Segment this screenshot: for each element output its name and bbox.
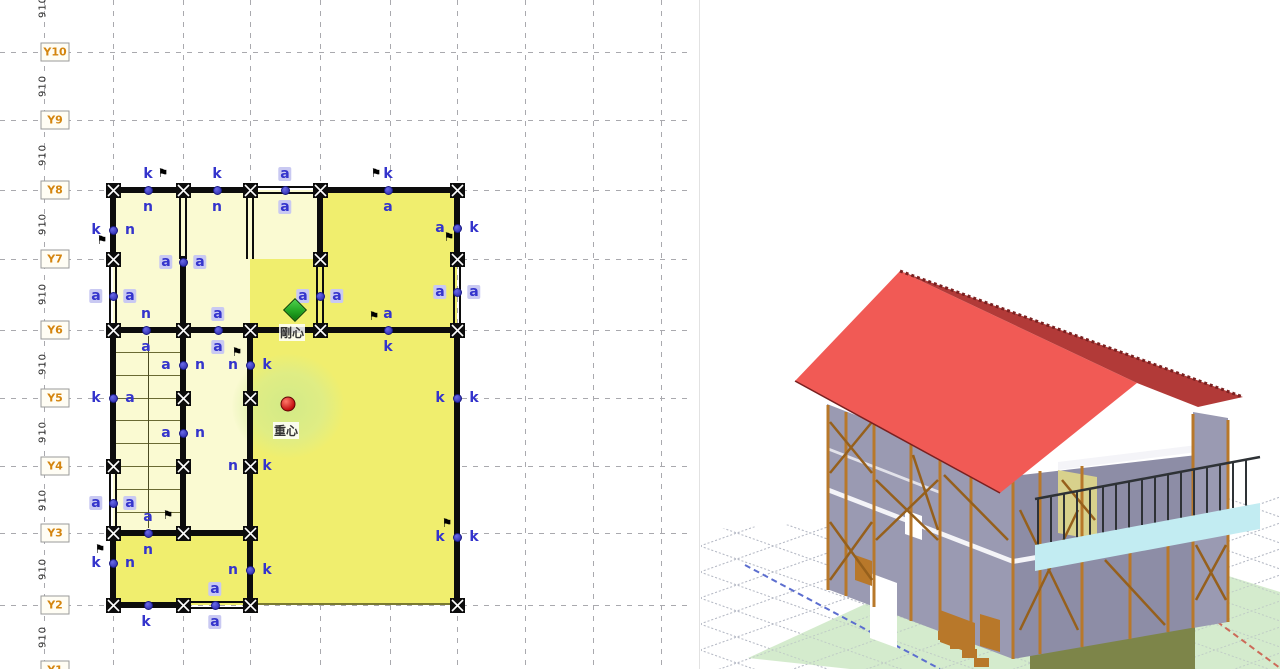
column-marker[interactable]	[243, 526, 258, 541]
brace-flag-icon: ⚑	[158, 167, 169, 179]
y-grid-label[interactable]: Y7	[41, 250, 70, 269]
stud-marker[interactable]	[179, 361, 188, 370]
center-of-gravity-label: 重心	[273, 422, 299, 439]
column-marker[interactable]	[106, 598, 121, 613]
brace-flag-icon: ⚑	[95, 543, 106, 555]
column-marker[interactable]	[106, 323, 121, 338]
stud-marker[interactable]	[453, 394, 462, 403]
wall-label[interactable]: a	[161, 426, 170, 440]
wall-label[interactable]: a	[89, 496, 102, 510]
column-marker[interactable]	[176, 526, 191, 541]
grid-line-horizontal	[0, 605, 692, 606]
y-grid-label[interactable]: Y3	[41, 524, 70, 543]
grid-iso-line	[700, 0, 1280, 182]
wall-label[interactable]: k	[383, 167, 392, 181]
brace-flag-icon: ⚑	[369, 310, 380, 322]
stud-marker[interactable]	[213, 186, 222, 195]
wall-label[interactable]: n	[228, 358, 238, 372]
grid-iso-line	[700, 0, 1280, 104]
wall-label[interactable]: a	[143, 510, 152, 524]
brace-flag-icon: ⚑	[371, 167, 382, 179]
y-grid-label[interactable]: Y5	[41, 389, 70, 408]
wall-label[interactable]: k	[435, 391, 444, 405]
stud-marker[interactable]	[246, 566, 255, 575]
wall-label[interactable]: a	[383, 200, 392, 214]
brace-flag-icon: ⚑	[163, 509, 174, 521]
stud-marker[interactable]	[281, 186, 290, 195]
column-marker[interactable]	[450, 598, 465, 613]
wall-label[interactable]: k	[435, 530, 444, 544]
stud-marker[interactable]	[453, 533, 462, 542]
wall-label[interactable]: a	[278, 167, 291, 181]
room-edge-line	[250, 603, 457, 605]
dimension-label: 910	[38, 558, 49, 580]
stud-marker[interactable]	[109, 292, 118, 301]
y-grid-label[interactable]: Y4	[41, 457, 70, 476]
grid-iso-line	[700, 104, 1280, 309]
grid-line-vertical	[525, 0, 526, 669]
column-marker[interactable]	[176, 323, 191, 338]
stud-marker[interactable]	[144, 601, 153, 610]
wall-label[interactable]: a	[467, 285, 480, 299]
wall-label[interactable]: a	[123, 289, 136, 303]
dimension-label: 910	[38, 353, 49, 375]
wall-label[interactable]: n	[195, 426, 205, 440]
stud-marker[interactable]	[214, 326, 223, 335]
room-area[interactable]	[250, 259, 320, 330]
wall-label[interactable]: a	[141, 340, 150, 354]
wall-label[interactable]: n	[212, 200, 222, 214]
wall-label[interactable]: a	[123, 496, 136, 510]
wall-solid[interactable]	[317, 187, 323, 262]
wall-label[interactable]: a	[330, 289, 343, 303]
wall-label[interactable]: a	[208, 582, 221, 596]
wall-label[interactable]: n	[143, 543, 153, 557]
column-marker[interactable]	[243, 183, 258, 198]
grid-iso-line	[700, 107, 1280, 312]
grid-iso-line	[700, 0, 1280, 130]
stud-marker[interactable]	[246, 361, 255, 370]
dimension-label: 910	[38, 489, 49, 511]
wall-label[interactable]: k	[143, 167, 152, 181]
grid-iso-line	[700, 3, 1280, 208]
wall-label[interactable]: n	[195, 358, 205, 372]
grid-iso-line	[700, 29, 1280, 234]
column-marker[interactable]	[106, 459, 121, 474]
grid-iso-line	[700, 107, 1280, 312]
wall-label[interactable]: a	[433, 285, 446, 299]
stud-marker[interactable]	[179, 429, 188, 438]
3d-view-panel[interactable]	[700, 0, 1280, 669]
grid-iso-line	[700, 55, 1280, 260]
column-marker[interactable]	[450, 183, 465, 198]
wall-solid[interactable]	[454, 327, 460, 608]
wall-label[interactable]: a	[193, 255, 206, 269]
stair-center-line	[148, 336, 149, 528]
wall-label[interactable]: k	[469, 530, 478, 544]
grid-line-horizontal	[0, 52, 692, 53]
wall-label[interactable]: a	[211, 307, 224, 321]
column-marker[interactable]	[176, 391, 191, 406]
wall-label[interactable]: a	[125, 391, 134, 405]
stud-marker[interactable]	[144, 529, 153, 538]
stud-marker[interactable]	[453, 288, 462, 297]
wall-label[interactable]: k	[91, 556, 100, 570]
column-marker[interactable]	[243, 391, 258, 406]
dimension-label: 910	[38, 283, 49, 305]
y-grid-label[interactable]: Y2	[41, 596, 70, 615]
grid-iso-line	[700, 29, 1280, 234]
wall-label[interactable]: a	[208, 615, 221, 629]
column-marker[interactable]	[313, 252, 328, 267]
floor-plan-canvas[interactable]: knaakaaaknaaanannknknkaaakaakkkkknknaaka…	[0, 0, 700, 669]
stud-marker[interactable]	[179, 258, 188, 267]
wall-label[interactable]: n	[228, 563, 238, 577]
wall-label[interactable]: k	[262, 358, 271, 372]
column-marker[interactable]	[450, 323, 465, 338]
wall-label[interactable]: k	[141, 615, 150, 629]
brace-flag-icon: ⚑	[97, 234, 108, 246]
column-marker[interactable]	[243, 459, 258, 474]
3d-stair-step	[950, 640, 965, 649]
brace-flag-icon: ⚑	[232, 346, 243, 358]
dimension-label: 910	[38, 421, 49, 443]
column-marker[interactable]	[176, 459, 191, 474]
grid-line-vertical	[593, 0, 594, 669]
wall-label[interactable]: a	[89, 289, 102, 303]
column-marker[interactable]	[313, 323, 328, 338]
wall-label[interactable]: a	[278, 200, 291, 214]
column-marker[interactable]	[106, 183, 121, 198]
column-marker[interactable]	[313, 183, 328, 198]
wall-label[interactable]: a	[159, 255, 172, 269]
column-marker[interactable]	[243, 323, 258, 338]
grid-iso-line	[700, 81, 1280, 286]
dimension-label: 910	[38, 213, 49, 235]
y-grid-label[interactable]: Y8	[41, 181, 70, 200]
y-grid-label[interactable]: Y6	[41, 321, 70, 340]
app-window: knaakaaaknaaanannknknkaaakaakkkkknknaaka…	[0, 0, 1280, 669]
wall-label[interactable]: n	[125, 556, 135, 570]
stud-marker[interactable]	[142, 326, 151, 335]
wall-solid[interactable]	[110, 530, 116, 608]
wall-label[interactable]: n	[143, 200, 153, 214]
wall-label[interactable]: k	[262, 459, 271, 473]
column-marker[interactable]	[450, 252, 465, 267]
y-grid-label[interactable]: Y9	[41, 111, 70, 130]
column-marker[interactable]	[106, 252, 121, 267]
grid-iso-line	[700, 3, 1280, 208]
stud-marker[interactable]	[109, 559, 118, 568]
wall-label[interactable]: k	[212, 167, 221, 181]
y-grid-label[interactable]: Y10	[41, 43, 70, 62]
center-of-gravity-marker[interactable]	[281, 397, 296, 412]
grid-iso-line	[700, 0, 1280, 130]
3d-stair-step	[974, 658, 989, 667]
column-marker[interactable]	[243, 598, 258, 613]
grid-iso-line	[700, 104, 1280, 309]
window-lattice-right	[980, 614, 1000, 652]
stud-marker[interactable]	[109, 499, 118, 508]
dimension-label: 910	[38, 144, 49, 166]
stud-marker[interactable]	[384, 326, 393, 335]
wall-label[interactable]: n	[141, 307, 151, 321]
grid-iso-line	[700, 0, 1280, 156]
grid-iso-line	[700, 81, 1280, 286]
grid-iso-line	[700, 55, 1280, 260]
column-marker[interactable]	[176, 598, 191, 613]
wall-label[interactable]: k	[262, 563, 271, 577]
wall-window[interactable]	[246, 190, 254, 259]
wall-label[interactable]: a	[161, 358, 170, 372]
stud-marker[interactable]	[316, 292, 325, 301]
stud-marker[interactable]	[109, 226, 118, 235]
wall-label[interactable]: k	[469, 391, 478, 405]
wall-window[interactable]	[179, 190, 187, 259]
stud-marker[interactable]	[109, 394, 118, 403]
grid-iso-line	[700, 0, 1280, 156]
column-marker[interactable]	[106, 526, 121, 541]
dimension-label: 910	[38, 75, 49, 97]
y-grid-label[interactable]: Y1	[41, 661, 70, 669]
wall-label[interactable]: a	[383, 307, 392, 321]
wall-label[interactable]: k	[91, 391, 100, 405]
stud-marker[interactable]	[384, 186, 393, 195]
wall-solid[interactable]	[110, 187, 116, 262]
wall-label[interactable]: a	[211, 340, 224, 354]
center-of-rigidity-label: 剛心	[279, 324, 305, 341]
dimension-label: 910	[38, 0, 49, 18]
brace-flag-icon: ⚑	[442, 517, 453, 529]
grid-line-horizontal	[0, 120, 692, 121]
column-marker[interactable]	[176, 183, 191, 198]
brace-flag-icon: ⚑	[444, 231, 455, 243]
dimension-label: 910	[38, 626, 49, 648]
3d-stair-step	[962, 649, 977, 658]
grid-iso-line	[700, 0, 1280, 104]
grid-line-vertical	[661, 0, 662, 669]
wall-label[interactable]: n	[125, 223, 135, 237]
stud-marker[interactable]	[211, 601, 220, 610]
wall-label[interactable]: k	[383, 340, 392, 354]
house-3d-render[interactable]	[700, 0, 1280, 669]
stud-marker[interactable]	[144, 186, 153, 195]
grid-iso-line	[700, 0, 1280, 182]
wall-label[interactable]: n	[228, 459, 238, 473]
wall-label[interactable]: k	[469, 221, 478, 235]
